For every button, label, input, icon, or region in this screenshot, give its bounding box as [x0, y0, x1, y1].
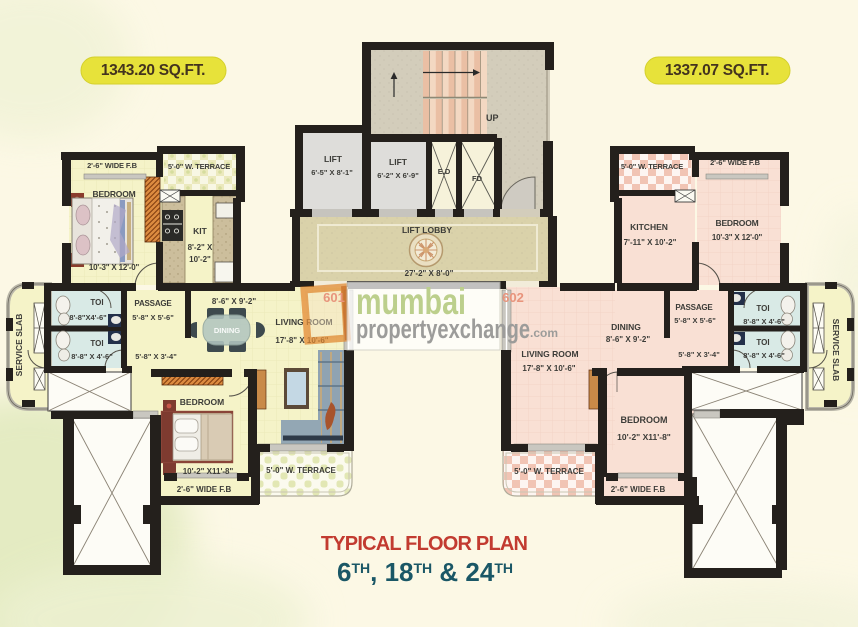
svg-text:FD: FD [472, 174, 483, 183]
svg-text:5'-0" W. TERRACE: 5'-0" W. TERRACE [621, 162, 683, 171]
svg-text:BEDROOM: BEDROOM [716, 218, 759, 228]
svg-text:TOI: TOI [756, 338, 769, 347]
svg-text:27'-2" X 8'-0": 27'-2" X 8'-0" [405, 269, 454, 278]
svg-text:TYPICAL FLOOR PLAN: TYPICAL FLOOR PLAN [321, 533, 528, 555]
svg-text:2'-6" WIDE F.B: 2'-6" WIDE F.B [710, 158, 760, 167]
svg-text:10'-2" X11'-8": 10'-2" X11'-8" [183, 467, 234, 476]
svg-text:5'-8" X 5'-6": 5'-8" X 5'-6" [674, 316, 716, 325]
svg-text:BEDROOM: BEDROOM [93, 189, 136, 199]
svg-text:BEDROOM: BEDROOM [621, 415, 668, 425]
svg-text:PASSAGE: PASSAGE [134, 299, 172, 308]
svg-text:8'-8" X 4'-6": 8'-8" X 4'-6" [743, 317, 785, 326]
svg-text:TOI: TOI [756, 304, 769, 313]
svg-text:BEDROOM: BEDROOM [180, 397, 224, 407]
svg-text:TOI: TOI [90, 339, 103, 348]
svg-text:2'-6" WIDE F.B: 2'-6" WIDE F.B [177, 485, 232, 494]
svg-text:10'-2": 10'-2" [189, 255, 211, 264]
svg-text:6'-5" X 8'-1": 6'-5" X 8'-1" [311, 168, 353, 177]
svg-text:SERVICE SLAB: SERVICE SLAB [831, 319, 841, 382]
svg-text:10'-3" X 12'-0": 10'-3" X 12'-0" [89, 263, 140, 272]
svg-text:2'-6" WIDE F.B: 2'-6" WIDE F.B [87, 161, 137, 170]
svg-text:DINING: DINING [611, 322, 641, 332]
svg-text:5'-8" X 3'-4": 5'-8" X 3'-4" [135, 352, 177, 361]
svg-text:5'-8" X 5'-6": 5'-8" X 5'-6" [132, 313, 174, 322]
svg-text:601: 601 [323, 290, 345, 305]
svg-text:DINING: DINING [214, 326, 240, 335]
svg-text:7'-11" X 10'-2": 7'-11" X 10'-2" [624, 238, 677, 247]
svg-text:8'-2" X: 8'-2" X [188, 243, 213, 252]
svg-text:SERVICE SLAB: SERVICE SLAB [14, 314, 24, 377]
svg-text:5'-8" X 3'-4": 5'-8" X 3'-4" [678, 350, 720, 359]
svg-text:1337.07 SQ.FT.: 1337.07 SQ.FT. [665, 62, 769, 79]
svg-text:LIFT: LIFT [389, 157, 408, 167]
svg-text:UP: UP [486, 113, 499, 123]
svg-text:5'-0" W. TERRACE: 5'-0" W. TERRACE [266, 466, 336, 475]
svg-text:5'-0" W. TERRACE: 5'-0" W. TERRACE [168, 162, 230, 171]
svg-text:KIT: KIT [193, 226, 208, 236]
svg-text:E.D: E.D [438, 167, 451, 176]
svg-text:LIFT LOBBY: LIFT LOBBY [402, 225, 452, 235]
svg-text:6'-2" X 6'-9": 6'-2" X 6'-9" [377, 171, 419, 180]
svg-text:602: 602 [502, 290, 524, 305]
svg-text:8'-8" X 4'-6": 8'-8" X 4'-6" [743, 351, 785, 360]
svg-text:10'-3" X 12'-0": 10'-3" X 12'-0" [712, 233, 763, 242]
svg-text:8'-6" X 9'-2": 8'-6" X 9'-2" [212, 297, 257, 306]
svg-text:5'-0" W. TERRACE: 5'-0" W. TERRACE [514, 467, 584, 476]
svg-text:8'-8" X 4'-6": 8'-8" X 4'-6" [71, 352, 113, 361]
svg-text:PASSAGE: PASSAGE [675, 303, 713, 312]
svg-text:10'-2" X11'-8": 10'-2" X11'-8" [617, 432, 671, 442]
svg-text:LIFT: LIFT [324, 154, 343, 164]
svg-text:.com: .com [530, 326, 558, 340]
svg-text:TOI: TOI [90, 298, 103, 307]
svg-text:8'-8"X4'-6": 8'-8"X4'-6" [69, 313, 107, 322]
svg-text:17'-8" X 10'-6": 17'-8" X 10'-6" [522, 364, 575, 373]
svg-text:KITCHEN: KITCHEN [630, 222, 668, 232]
svg-text:propertyexchange: propertyexchange [356, 314, 530, 344]
svg-text:2'-6" WIDE F.B: 2'-6" WIDE F.B [611, 485, 666, 494]
svg-text:LIVING ROOM: LIVING ROOM [521, 349, 578, 359]
svg-text:1343.20 SQ.FT.: 1343.20 SQ.FT. [101, 62, 205, 79]
svg-text:8'-6" X 9'-2": 8'-6" X 9'-2" [606, 335, 651, 344]
